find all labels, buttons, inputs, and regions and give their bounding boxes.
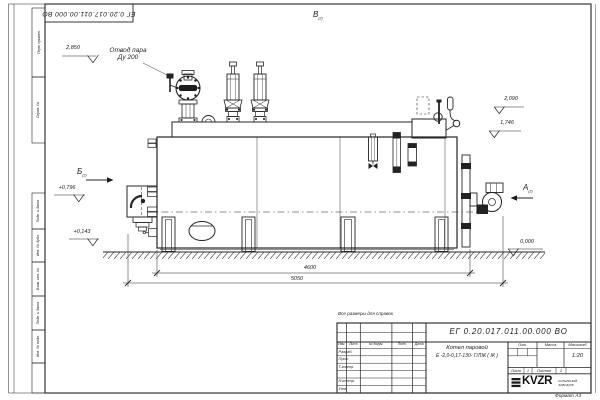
sheets-label: Листов	[532, 369, 556, 373]
margin-label: Подп. и дата	[36, 200, 40, 223]
steam-outlet-callout: Отвод пара Ду 200	[100, 47, 156, 62]
prop-header-lit: Лит.	[508, 343, 537, 347]
logo-tagline: КОТЕЛЬНЫЙ ЗАВОД РФ	[559, 379, 578, 387]
sign-row-utv: Утв.	[339, 387, 348, 391]
view-label-left: Б(2)	[77, 167, 87, 178]
margin-label: Справ. №	[36, 102, 40, 118]
sheet-label: Лист	[508, 369, 524, 373]
sheets-total: 2	[556, 369, 566, 373]
steam-outlet-line1: Отвод пара	[100, 47, 156, 54]
top-doc-number-box: ЕГ 0.20.017.011.00.000 ВО	[45, 4, 133, 22]
margin-box-vzam-inv: Взам. инв. №	[32, 262, 45, 296]
view-label-right: А(2)	[523, 183, 533, 194]
margin-box-podp-data-1: Подп. и дата	[32, 193, 45, 229]
sign-row-nkontr: Н.контр.	[339, 379, 355, 383]
elevation-right-lower: 1,746	[492, 120, 522, 126]
margin-label: Подп. и дата	[36, 302, 40, 325]
sign-row-razrab: Разраб.	[339, 350, 353, 354]
view-sheet-ref: (2)	[318, 17, 322, 21]
scale-value: 1:20	[564, 353, 591, 360]
elevation-steam-valve: 2,850	[58, 45, 88, 51]
margin-box-perv-primen: Перв. примен.	[32, 8, 45, 77]
manufacturer-logo: KVZR	[522, 375, 559, 391]
margin-label: Инв. № дубл.	[36, 234, 40, 256]
prop-header-masshtab: Масштаб	[564, 343, 591, 347]
sheet-number: 1	[524, 369, 532, 373]
sign-row-prov: Пров.	[339, 357, 349, 361]
margin-box-podp-data-2: Подп. и дата	[32, 296, 45, 330]
margin-box-sprav: Справ. №	[32, 77, 45, 143]
elevation-left-lower: +0,143	[67, 229, 97, 235]
drawing-sheet: ЕГ 0.20.017.011.00.000 ВО Перв. примен. …	[0, 0, 600, 400]
dimension-support-span: 4600	[293, 265, 327, 271]
col-header-data: Дата	[413, 343, 427, 347]
dimension-overall-length: 5050	[280, 276, 314, 282]
sign-row-tkontr: Т.контр.	[339, 365, 355, 369]
logo-tagline-line2: ЗАВОД РФ	[559, 383, 578, 387]
steam-outlet-line2: Ду 200	[100, 54, 156, 61]
col-header-ndok: № докум.	[360, 343, 392, 347]
col-header-list: Лист	[347, 343, 361, 347]
margin-label: Взам. инв. №	[36, 268, 40, 290]
elevation-left-upper: +0,796	[52, 185, 82, 191]
elevation-ground: 0,000	[512, 239, 542, 245]
format-label: Формат А3	[545, 394, 591, 400]
margin-box-inv-podl: Инв. № подл.	[32, 330, 45, 363]
product-name-line1: Котел паровой	[426, 345, 508, 352]
elevation-right-upper: 2,090	[496, 96, 526, 102]
top-doc-number: ЕГ 0.20.017.011.00.000 ВО	[42, 9, 136, 17]
title-block-doc-number: ЕГ 0.20.017.011.00.000 ВО	[426, 327, 591, 336]
prop-header-massa: Масса	[537, 343, 564, 347]
view-sheet-ref: (2)	[528, 190, 532, 194]
margin-label: Перв. примен.	[36, 31, 40, 55]
margin-label: Инв. № подл.	[36, 335, 40, 357]
boiler-drawing-linework	[0, 0, 600, 400]
view-label-top: В(2)	[313, 10, 323, 21]
margin-box-inv-dubl: Инв. № дубл.	[32, 229, 45, 262]
product-name-line2: Е -2,0-0,17-130- Г/ЛЖ ( Ж )	[426, 354, 508, 360]
col-header-podp: Подп.	[392, 343, 413, 347]
reference-note: Все размеры для справок	[338, 311, 393, 316]
view-sheet-ref: (2)	[82, 174, 86, 178]
col-header-izm: Изм.	[337, 343, 347, 347]
